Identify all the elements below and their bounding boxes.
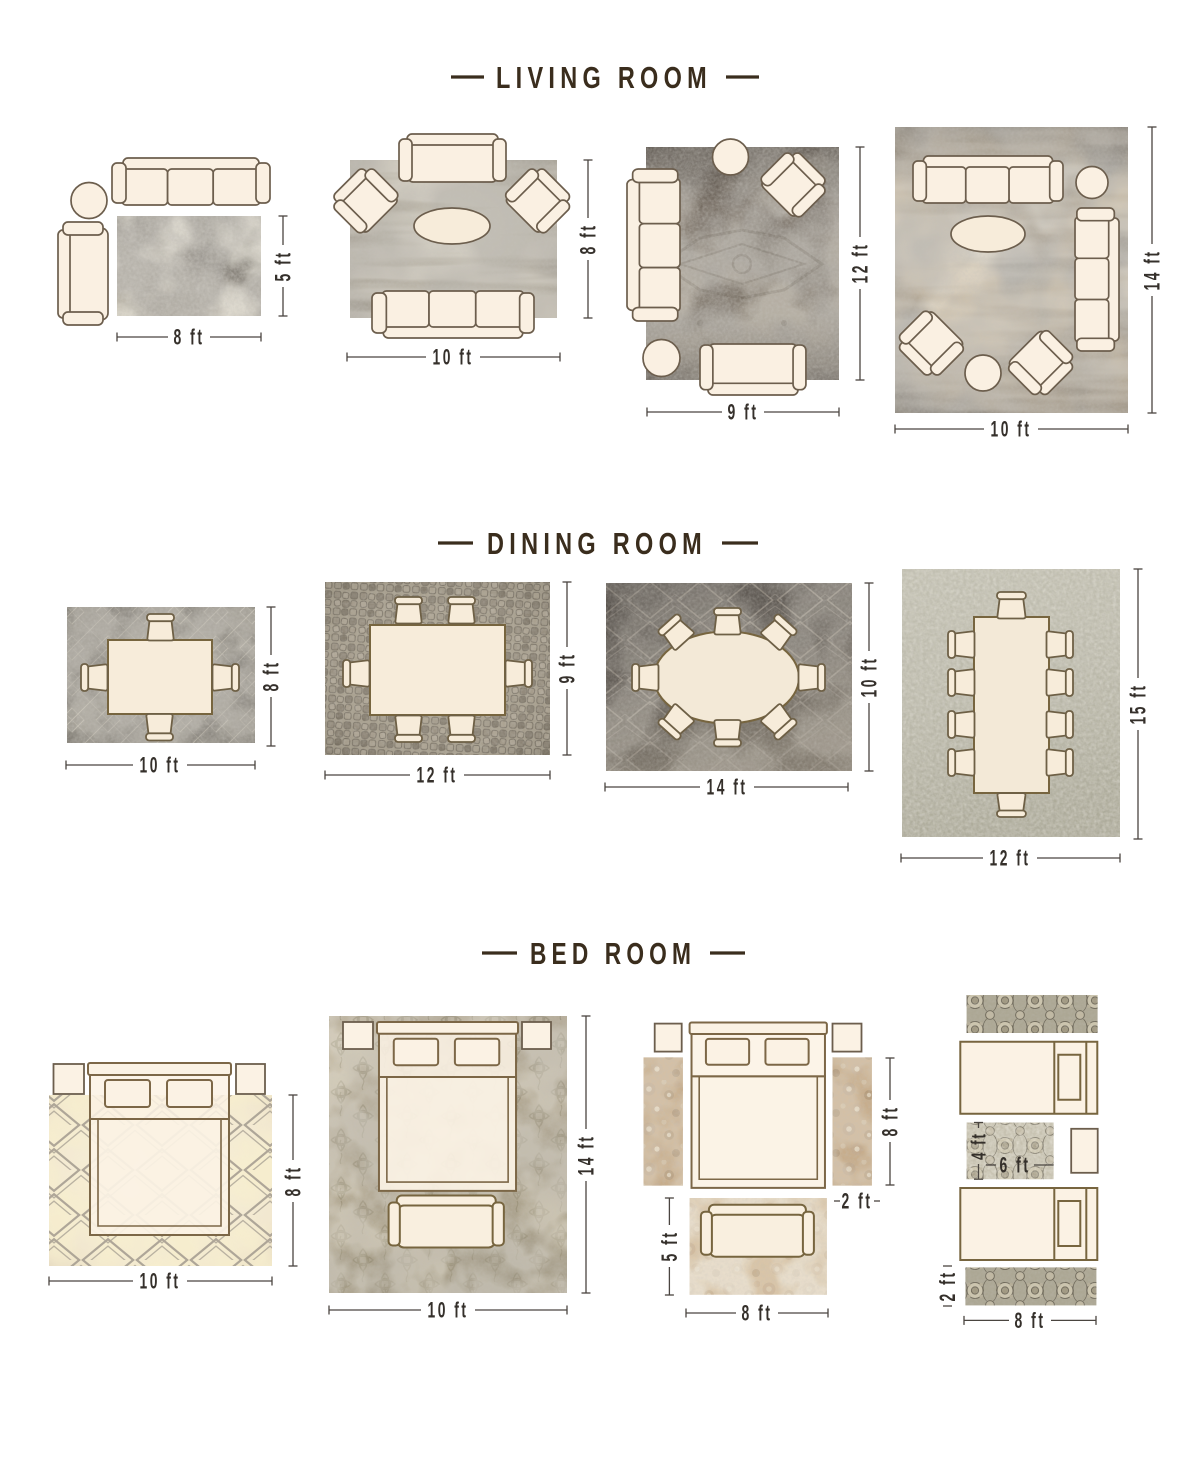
- svg-text:12 ft: 12 ft: [417, 763, 458, 788]
- svg-text:2 ft: 2 ft: [935, 1271, 960, 1302]
- svg-text:12 ft: 12 ft: [848, 243, 873, 284]
- svg-text:8 ft: 8 ft: [259, 661, 284, 692]
- svg-text:LIVING ROOM: LIVING ROOM: [496, 60, 712, 95]
- svg-text:8 ft: 8 ft: [281, 1166, 306, 1197]
- svg-text:2 ft: 2 ft: [842, 1189, 873, 1214]
- svg-text:8 ft: 8 ft: [576, 224, 601, 255]
- svg-text:9 ft: 9 ft: [555, 653, 580, 684]
- svg-text:10 ft: 10 ft: [433, 345, 474, 370]
- svg-text:4 ft: 4 ft: [969, 1132, 991, 1160]
- svg-text:5 ft: 5 ft: [657, 1231, 682, 1262]
- svg-text:DINING ROOM: DINING ROOM: [487, 526, 707, 561]
- svg-text:10 ft: 10 ft: [140, 1269, 181, 1294]
- svg-text:8 ft: 8 ft: [742, 1301, 773, 1326]
- svg-text:10 ft: 10 ft: [991, 417, 1032, 442]
- svg-text:14 ft: 14 ft: [574, 1135, 599, 1176]
- svg-text:14 ft: 14 ft: [707, 775, 748, 800]
- svg-text:10 ft: 10 ft: [428, 1298, 469, 1323]
- svg-text:10 ft: 10 ft: [857, 657, 882, 698]
- svg-text:15 ft: 15 ft: [1126, 684, 1151, 725]
- svg-text:9 ft: 9 ft: [728, 400, 759, 425]
- svg-text:5 ft: 5 ft: [271, 251, 296, 282]
- svg-text:14 ft: 14 ft: [1140, 250, 1165, 291]
- svg-text:8 ft: 8 ft: [878, 1106, 903, 1137]
- svg-text:10 ft: 10 ft: [140, 753, 181, 778]
- svg-text:6 ft: 6 ft: [1000, 1153, 1031, 1178]
- svg-text:8 ft: 8 ft: [174, 325, 205, 350]
- svg-text:BED ROOM: BED ROOM: [530, 936, 696, 971]
- svg-text:12 ft: 12 ft: [990, 846, 1031, 871]
- svg-text:8 ft: 8 ft: [1015, 1308, 1046, 1333]
